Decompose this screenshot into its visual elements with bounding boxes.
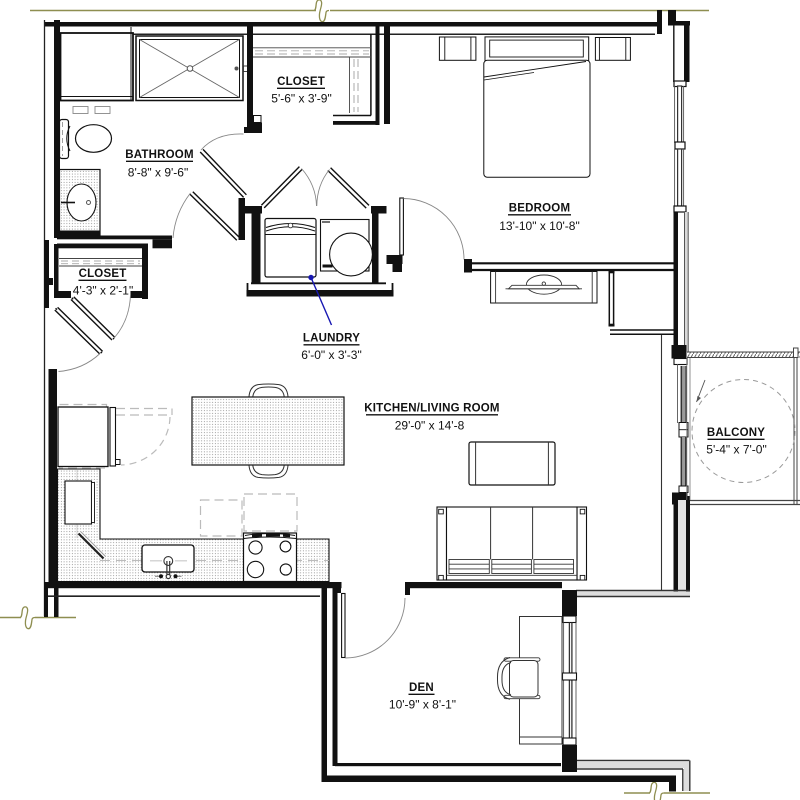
svg-text:13'-10" x 10'-8": 13'-10" x 10'-8" (499, 219, 579, 233)
svg-text:DEN: DEN (409, 682, 434, 694)
svg-text:BALCONY: BALCONY (707, 427, 765, 439)
svg-text:4'-3" x 2'-1": 4'-3" x 2'-1" (73, 284, 133, 298)
svg-text:BATHROOM: BATHROOM (125, 149, 193, 161)
svg-text:CLOSET: CLOSET (79, 268, 127, 280)
svg-text:6'-0" x 3'-3": 6'-0" x 3'-3" (301, 348, 361, 362)
svg-text:5'-4" x 7'-0": 5'-4" x 7'-0" (706, 443, 766, 457)
svg-text:KITCHEN/LIVING ROOM: KITCHEN/LIVING ROOM (364, 403, 499, 415)
svg-text:BEDROOM: BEDROOM (509, 203, 570, 215)
svg-text:29'-0" x 14'-8: 29'-0" x 14'-8 (395, 419, 465, 433)
svg-text:5'-6" x 3'-9": 5'-6" x 3'-9" (271, 92, 331, 106)
svg-text:LAUNDRY: LAUNDRY (303, 333, 360, 345)
svg-text:8'-8" x 9'-6": 8'-8" x 9'-6" (128, 166, 188, 180)
svg-text:CLOSET: CLOSET (277, 76, 325, 88)
svg-text:10'-9" x 8'-1": 10'-9" x 8'-1" (389, 698, 456, 712)
